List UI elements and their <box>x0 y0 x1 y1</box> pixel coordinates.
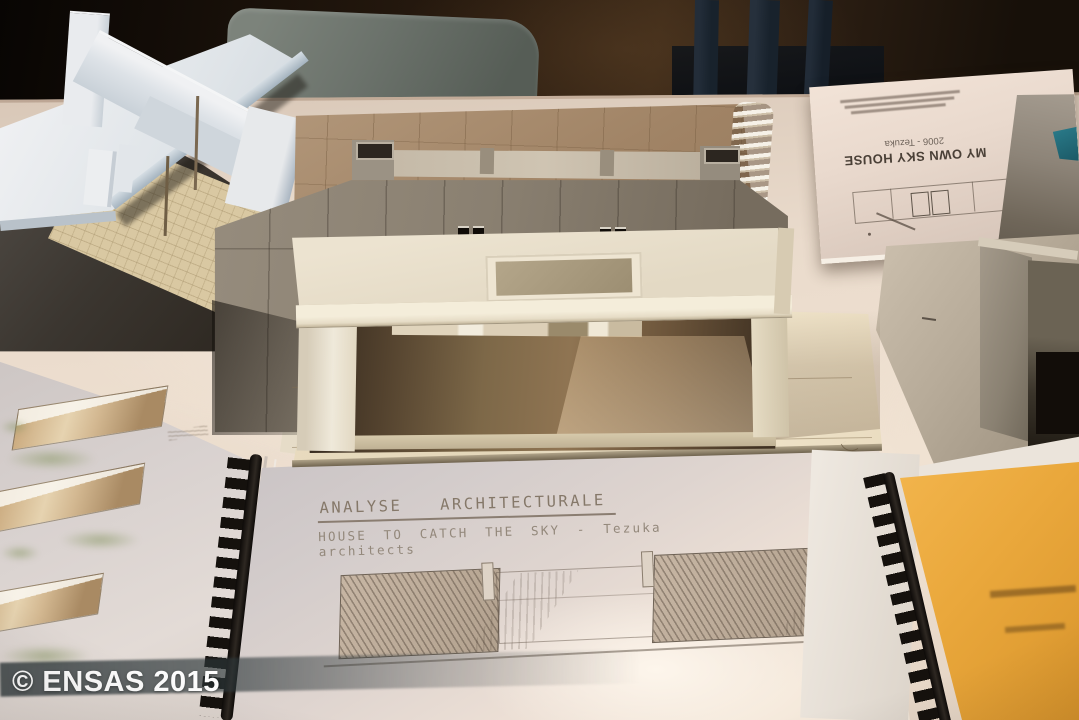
leader-dot <box>868 233 871 236</box>
gray-model-roof-notch <box>480 148 494 174</box>
watercolor-green-wash <box>60 530 140 550</box>
gray-model-roof-notch <box>600 150 614 176</box>
rail-post <box>481 562 495 601</box>
left-model-pillar <box>83 149 117 208</box>
cream-model-right-wall <box>751 302 789 438</box>
pencil-plan-drawing <box>852 172 1021 238</box>
chimney-opening <box>356 142 394 160</box>
flipped-title-block: MY OWN SKY HOUSE 2006 - Tezuka <box>825 131 1004 170</box>
skylight-pane <box>496 258 633 296</box>
watercolor-green-wash <box>0 420 30 434</box>
exhibition-table-photo: MY OWN SKY HOUSE 2006 - Tezuka <box>0 0 1079 720</box>
right-model-box-left-face <box>980 243 1032 443</box>
right-model-opening <box>1036 352 1079 434</box>
gray-model-chimney <box>352 140 394 180</box>
rail-post <box>641 551 655 588</box>
plan-room <box>911 191 931 216</box>
chimney-opening <box>704 148 740 164</box>
watercolor-green-wash <box>0 545 40 561</box>
watercolor-green-wash <box>6 448 96 470</box>
watermark-text: © ENSAS 2015 <box>12 666 220 699</box>
plan-room <box>930 190 950 215</box>
cream-model-floor-light <box>555 336 770 441</box>
gray-model-chimney <box>700 146 740 182</box>
flipped-booklet: MY OWN SKY HOUSE 2006 - Tezuka <box>809 69 1079 264</box>
